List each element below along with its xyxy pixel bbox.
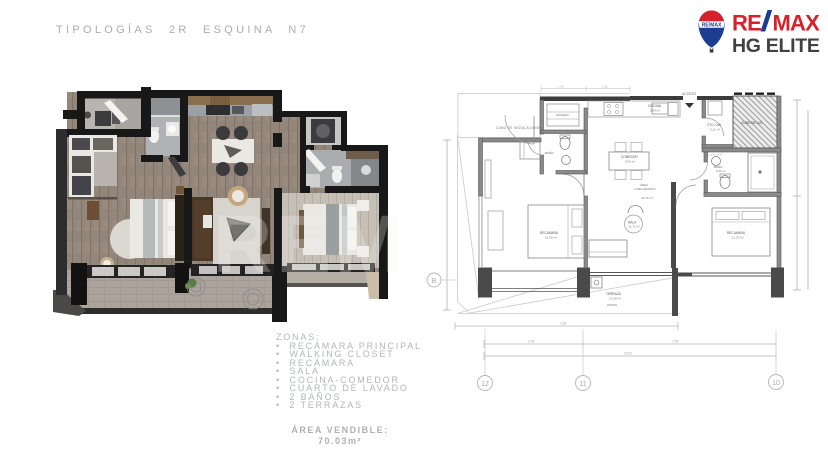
svg-text:REM: REM [213,199,407,290]
svg-text:COMEDOR: COMEDOR [621,155,638,159]
svg-text:CUBO DE LUZ: CUBO DE LUZ [741,121,762,125]
svg-text:10: 10 [772,380,780,387]
svg-text:7.76: 7.76 [672,340,678,344]
svg-text:10.52: 10.52 [624,352,632,356]
svg-text:CTO. LAV: CTO. LAV [707,123,722,127]
svg-text:BAÑO: BAÑO [545,150,554,155]
svg-text:TERRAZA: TERRAZA [606,292,622,296]
svg-text:1.52: 1.52 [602,85,608,89]
svg-text:11.23 m²: 11.23 m² [732,236,744,240]
svg-text:RECAMARA: RECAMARA [727,231,746,235]
svg-text:RECAMARA: RECAMARA [540,231,559,235]
svg-text:15.68 m²: 15.68 m² [545,236,557,240]
svg-text:CUBO DE INSTALACIONES: CUBO DE INSTALACIONES [496,126,543,130]
svg-text:3.60 m²: 3.60 m² [716,169,726,173]
svg-text:ACCESO: ACCESO [682,92,697,96]
svg-text:COCINA: COCINA [648,104,662,108]
svg-text:3.11 m²: 3.11 m² [710,128,720,132]
svg-text:B: B [432,278,437,285]
svg-text:15.09 m²: 15.09 m² [609,297,621,301]
svg-text:2 RECAMARAS: 2 RECAMARAS [634,187,656,191]
svg-text:ACCESO: ACCESO [556,113,569,117]
svg-text:2.76: 2.76 [528,340,534,344]
svg-text:1.45: 1.45 [558,85,564,89]
svg-text:9.50 m²: 9.50 m² [625,160,635,164]
svg-text:11.72 m²: 11.72 m² [629,225,640,229]
svg-text:7.19: 7.19 [560,322,566,326]
svg-text:3.54 m²: 3.54 m² [650,109,660,113]
svg-text:40.75 m²: 40.75 m² [641,196,653,200]
svg-text:12: 12 [481,381,489,388]
svg-text:11: 11 [579,381,586,388]
